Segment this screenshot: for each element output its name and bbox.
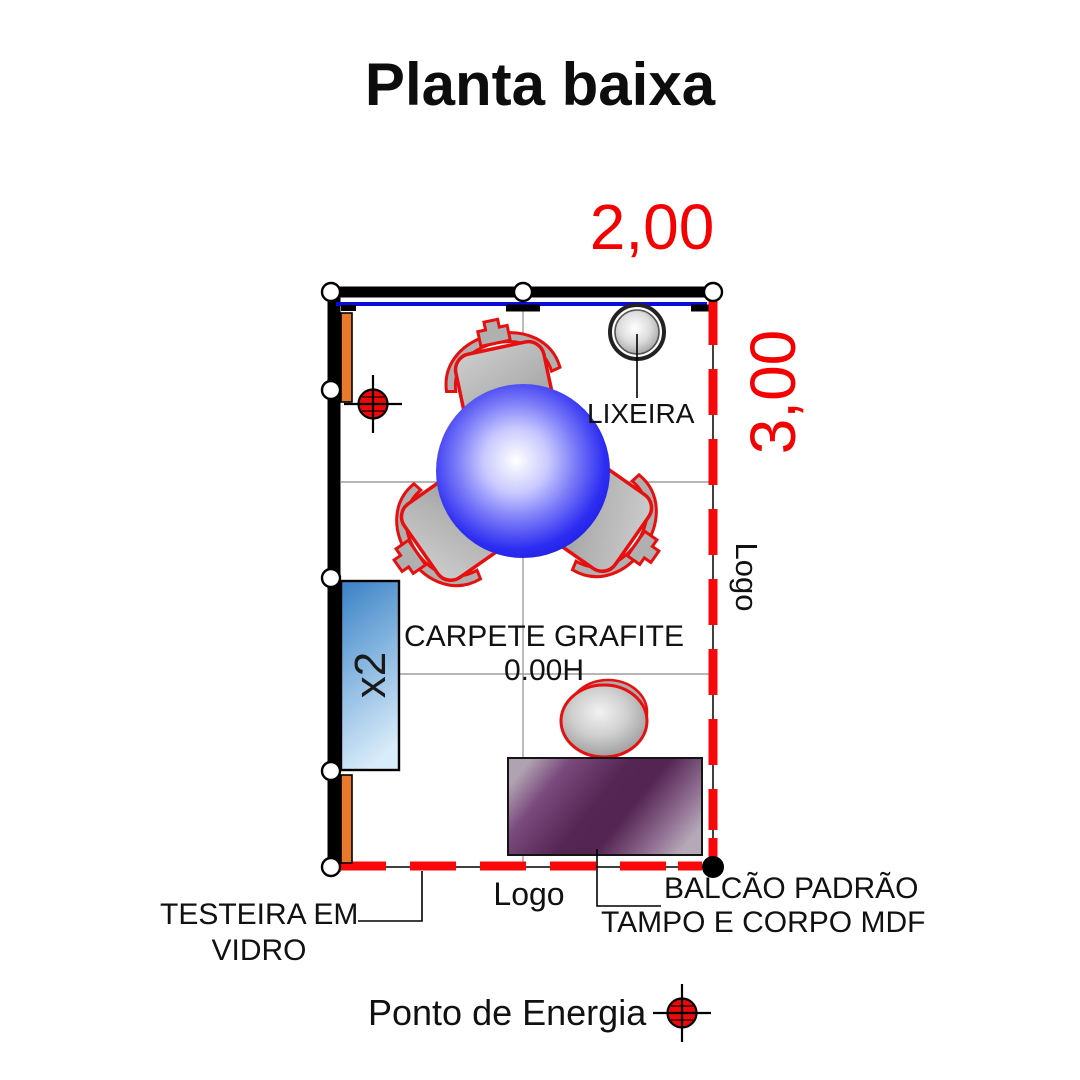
page-title: Planta baixa	[0, 50, 1080, 119]
round-table	[436, 384, 610, 558]
trash-bin-icon	[610, 305, 664, 398]
energy-point-legend-icon	[653, 984, 711, 1042]
leader-line-testeira	[358, 871, 422, 921]
wall-node	[322, 381, 340, 399]
carpet-label-line2: 0.00H	[398, 654, 690, 688]
trash-bin-label: LIXEIRA	[587, 398, 694, 430]
testeira-annotation: TESTEIRA EM VIDRO	[160, 897, 358, 969]
wall-node	[322, 858, 340, 876]
dimension-height: 3,00	[741, 313, 805, 471]
balcao-annotation-line2: TAMPO E CORPO MDF	[601, 906, 925, 940]
shelf-bottom	[341, 775, 352, 863]
wall-node	[704, 283, 722, 301]
testeira-annotation-line2: VIDRO	[160, 933, 358, 969]
dimension-width: 2,00	[577, 190, 727, 264]
carpet-label-line1: CARPETE GRAFITE	[398, 620, 690, 654]
cabinet-count-label: x2	[349, 640, 393, 710]
testeira-annotation-line1: TESTEIRA EM	[160, 897, 358, 933]
wall-node	[322, 762, 340, 780]
wall-node	[322, 283, 340, 301]
logo-bottom-label: Logo	[484, 876, 574, 913]
carpet-label: CARPETE GRAFITE 0.00H	[398, 620, 690, 688]
stool	[561, 680, 647, 757]
leader-line-balcao	[597, 849, 661, 906]
logo-side-label: Logo	[730, 522, 762, 632]
balcao-annotation-line1: BALCÃO PADRÃO	[664, 872, 919, 906]
wall-node	[322, 569, 340, 587]
wall-node	[514, 283, 532, 301]
shelf-top	[341, 313, 352, 402]
counter	[508, 758, 702, 855]
energy-point-label: Ponto de Energia	[368, 992, 646, 1034]
floor-plan-page: Planta baixa 2,00 3,00 LIXEIRA CARPETE G…	[0, 0, 1080, 1080]
